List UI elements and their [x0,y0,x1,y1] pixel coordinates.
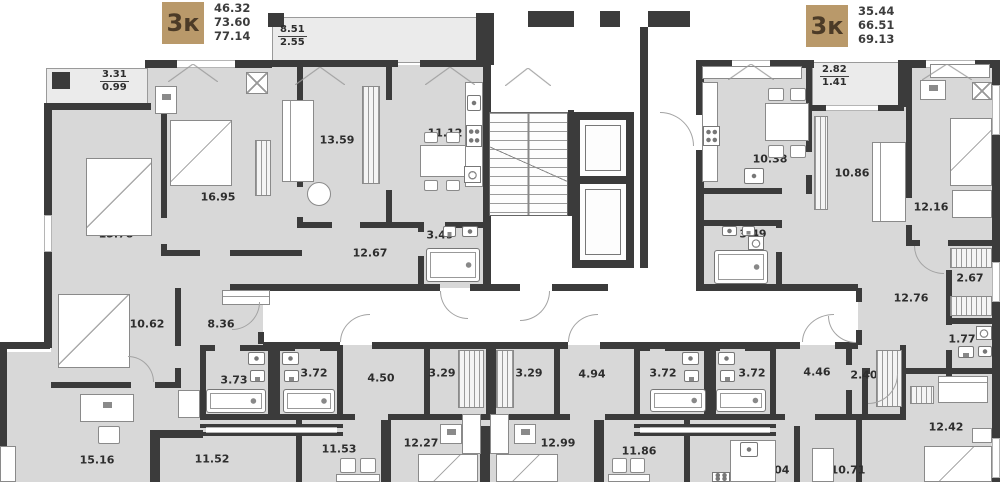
wall [634,345,650,351]
room-area-label: 4.94 [578,368,605,381]
elevator-icon [580,184,626,260]
wall [815,414,846,420]
living-area-value: 46.32 [214,1,250,15]
balcony-area-reduced: 2.55 [278,37,307,49]
wall [268,345,280,420]
bathtub-icon [426,248,480,282]
window-swing-icon [922,64,972,80]
toilet-icon [684,370,699,382]
wall [702,188,782,194]
closet-icon [178,390,200,418]
bed-icon [86,158,152,236]
door-swing-icon [340,314,370,342]
wall [230,250,302,256]
bed-icon [924,446,992,482]
side-table-icon [972,428,992,443]
sink-icon [282,352,299,365]
window-swing-icon [728,64,774,80]
desk-icon [80,394,134,422]
dining-table-icon [336,474,380,482]
wardrobe-icon [814,116,828,210]
bed-icon [418,454,478,482]
wall [150,438,160,482]
room-area-label: 3.73 [220,374,247,387]
wall [594,420,604,482]
total-area-value: 69.13 [858,32,894,46]
room-area-label: 11.86 [622,445,657,458]
wardrobe-icon [950,296,992,316]
wall [486,345,496,420]
desk-icon [920,80,946,100]
stove-icon [703,126,720,146]
wall [200,345,215,351]
wall [552,284,608,291]
wall [665,345,720,351]
closet-icon [812,448,834,482]
elevator-icon [580,120,626,176]
wall [992,478,1000,482]
wall [640,27,648,268]
balcony-area-full: 3.31 [100,69,129,82]
sink-icon [248,352,265,365]
room-area-label: 3.72 [649,367,676,380]
bathtub-icon [283,389,335,413]
door-swing-icon [440,291,468,319]
wall [386,65,392,100]
balcony-area-label: 2.82 1.41 [820,64,849,89]
crossed-box-icon [972,82,992,100]
crossed-box-icon [246,72,268,94]
wall [794,426,800,482]
room-area-label: 10.62 [130,318,165,331]
bed-icon [496,454,558,482]
dining-table-icon [608,474,650,482]
wall [946,350,952,376]
dining-table-icon [420,145,466,177]
window-swing-icon [295,67,345,85]
chair-icon [790,88,806,101]
sink-icon [740,442,758,457]
chair-icon [790,145,806,158]
room-area-label: 12.27 [404,437,439,450]
room-area-label: 11.52 [195,453,230,466]
stove-icon [712,472,730,482]
room-area-label: 1.77 [948,333,975,346]
wall [634,414,776,420]
stairs-icon [489,112,568,216]
wall [776,252,782,288]
room-area-label: 2.67 [956,272,983,285]
room-area-label: 13.59 [320,134,355,147]
chair-icon [340,458,356,473]
room-area-label: 10.86 [835,167,870,180]
room-area-label: 8.36 [207,318,234,331]
chair-icon [768,145,784,158]
wall [856,330,862,345]
washer-icon [464,166,481,183]
desk-icon [514,424,536,444]
wall [360,222,420,228]
bathtub-icon [714,250,768,284]
sink-icon [682,352,699,365]
wall [44,103,151,110]
wall [0,342,50,349]
wall [343,414,355,420]
wardrobe-icon [910,386,934,404]
washer-icon [748,236,764,250]
wall [381,420,391,482]
wall [528,11,574,27]
room-area-label: 12.76 [894,292,929,305]
sink-icon [722,226,737,236]
room-area-label: 3.29 [515,367,542,380]
balcony-area-label: 8.51 2.55 [278,24,307,49]
window-swing-icon [505,68,551,86]
wall [155,382,181,388]
toilet-icon [443,226,456,237]
chair-icon [446,132,460,143]
room-area-label: 3.72 [738,367,765,380]
sink-icon [462,226,478,237]
bathtub-icon [716,389,766,412]
chair-icon [446,180,460,191]
wall [268,60,398,67]
chair-icon [768,88,784,101]
closet-icon [462,414,481,454]
room-area-label: 15.16 [80,454,115,467]
wall [51,382,131,388]
wall [320,345,343,351]
bed-icon [58,294,130,368]
door-swing-icon [660,112,694,146]
wall [776,220,782,228]
living-area-value: 35.44 [858,4,894,18]
room-area-label: 12.42 [929,421,964,434]
chair-icon [424,180,438,191]
bathtub-icon [206,389,266,413]
wall [648,11,690,27]
area-value: 73.60 [214,15,250,29]
wardrobe-icon [255,140,271,196]
wall [44,286,52,348]
balcony-area-label: 3.31 0.99 [100,69,129,94]
wall [200,414,343,420]
sink-icon [744,168,764,184]
chair-icon [630,458,645,473]
window [992,262,1000,302]
toilet-icon [720,370,735,382]
balcony-area-reduced: 1.41 [820,77,849,89]
window-swing-icon [425,67,475,85]
closet-icon [490,414,509,454]
wardrobe-icon [458,350,484,408]
room-area-label: 4.46 [803,366,830,379]
shaft [206,427,337,433]
desk-icon [155,86,177,114]
wall [302,222,332,228]
wall [634,345,640,420]
total-area-value: 77.14 [214,29,250,43]
wall [372,342,568,349]
wall [745,345,770,351]
room-area-label: 12.16 [914,201,949,214]
room-area-label: 10.71 [831,464,866,477]
door-swing-icon [568,314,598,342]
window [44,215,52,252]
wall [856,288,862,302]
room-area-label: 16.95 [201,191,236,204]
wardrobe-icon [496,350,514,408]
dining-table-icon [765,103,809,141]
wall [846,414,906,420]
shaft [640,427,770,433]
wall [776,414,785,420]
wall [52,72,70,89]
wall [167,250,200,256]
wall [696,284,858,291]
wall [878,105,904,111]
wall [258,332,264,344]
balcony-area-full: 2.82 [820,64,849,77]
wall [600,11,620,27]
wall [846,345,852,365]
wardrobe-icon [362,86,380,184]
sink-icon [718,352,735,365]
sofa-icon [938,376,988,403]
wall [946,318,996,324]
bed-icon [170,120,232,186]
wardrobe-icon [950,248,992,268]
apartment-type-badge: 3к [162,2,204,44]
wall [605,414,634,420]
floor-plan: 3.31 0.99 8.51 2.55 2.82 1.41 15.78 16.9… [0,0,1000,482]
toilet-icon [250,370,265,382]
wall [44,103,52,215]
chair-icon [612,458,627,473]
apartment-areas: 35.44 66.51 69.13 [858,4,894,46]
bathtub-icon [650,389,706,412]
wall [476,13,494,65]
apartment-areas: 46.32 73.60 77.14 [214,1,250,43]
wall [388,414,424,420]
wall [554,345,560,420]
area-value: 66.51 [858,18,894,32]
wall [240,345,295,351]
chair-icon [360,458,376,473]
sink-icon [467,95,481,111]
wall [150,430,203,438]
wall [480,426,490,482]
chair-icon [98,426,120,444]
toilet-icon [284,370,299,382]
apartment-type-badge: 3к [806,5,848,47]
sofa-icon [872,142,906,222]
wall [770,345,776,420]
washer-icon [976,326,992,340]
wall [161,108,167,218]
toilet-icon [742,226,755,236]
bed-icon [950,118,992,186]
room-area-label: 12.99 [541,437,576,450]
balcony-area-full: 8.51 [278,24,307,37]
wall [948,240,996,246]
wall [424,345,430,420]
wall [44,252,52,288]
wall [175,288,181,346]
wall [470,284,520,291]
wall [418,222,424,232]
wall [806,175,812,194]
window [826,105,878,111]
wall [235,60,272,68]
bed-icon [0,446,16,482]
room-area-label: 4.50 [367,372,394,385]
wall [420,60,484,67]
wall [560,414,570,420]
door-swing-icon [520,291,550,321]
round-table-icon [307,182,331,206]
dresser-icon [952,190,992,218]
window [992,85,1000,135]
desk-icon [440,424,462,444]
room-area-label: 3.29 [428,367,455,380]
window-swing-icon [168,64,218,82]
toilet-icon [958,346,974,358]
wall [906,68,912,198]
chair-icon [424,132,438,143]
sink-icon [978,346,992,357]
balcony-area-reduced: 0.99 [100,82,129,94]
room-area-label: 11.53 [322,443,357,456]
sofa-icon [282,100,314,182]
room-area-label: 12.67 [353,247,388,260]
room-area-label: 3.72 [300,367,327,380]
wall [992,60,1000,85]
window [992,438,1000,478]
wall [702,220,782,226]
stove-icon [466,125,482,147]
wall [337,345,343,420]
